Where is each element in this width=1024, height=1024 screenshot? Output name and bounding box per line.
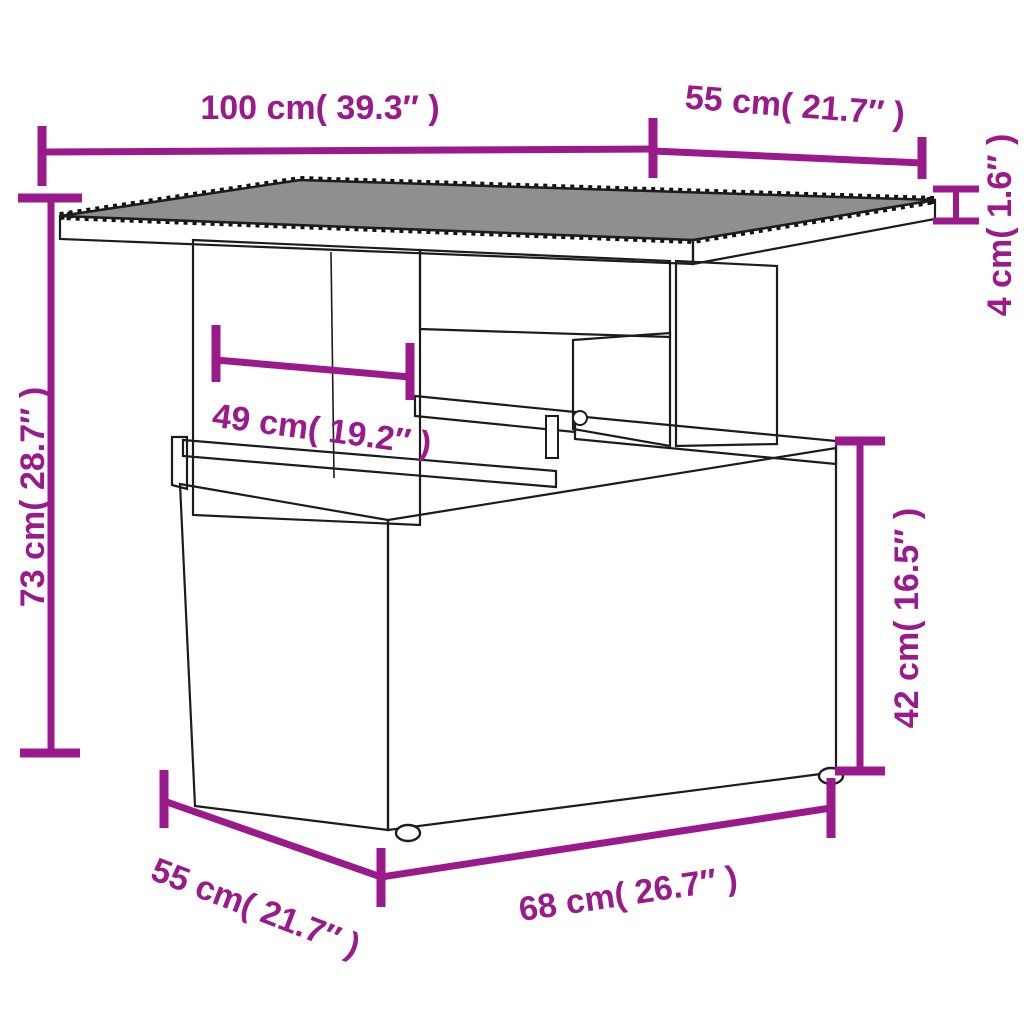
box-hinge-post	[546, 416, 558, 458]
diagram-canvas: 100 cm( 39.3″ ) 55 cm( 21.7″ ) 4 cm( 1.6…	[0, 0, 1024, 1024]
box-foot-left	[396, 825, 420, 841]
product-dimension-diagram: 100 cm( 39.3″ ) 55 cm( 21.7″ ) 4 cm( 1.6…	[0, 0, 1024, 1024]
dim-label-tabletop-width: 100 cm( 39.3″ )	[200, 89, 439, 127]
dim-label-box-height: 42 cm( 16.5″ )	[888, 508, 926, 728]
dim-line-tabletop-width	[42, 149, 653, 152]
dim-label-table-height: 73 cm( 28.7″ )	[14, 387, 52, 607]
dim-label-tabletop-thickness: 4 cm( 1.6″ )	[981, 134, 1019, 317]
box-hinge-knob	[573, 411, 587, 425]
